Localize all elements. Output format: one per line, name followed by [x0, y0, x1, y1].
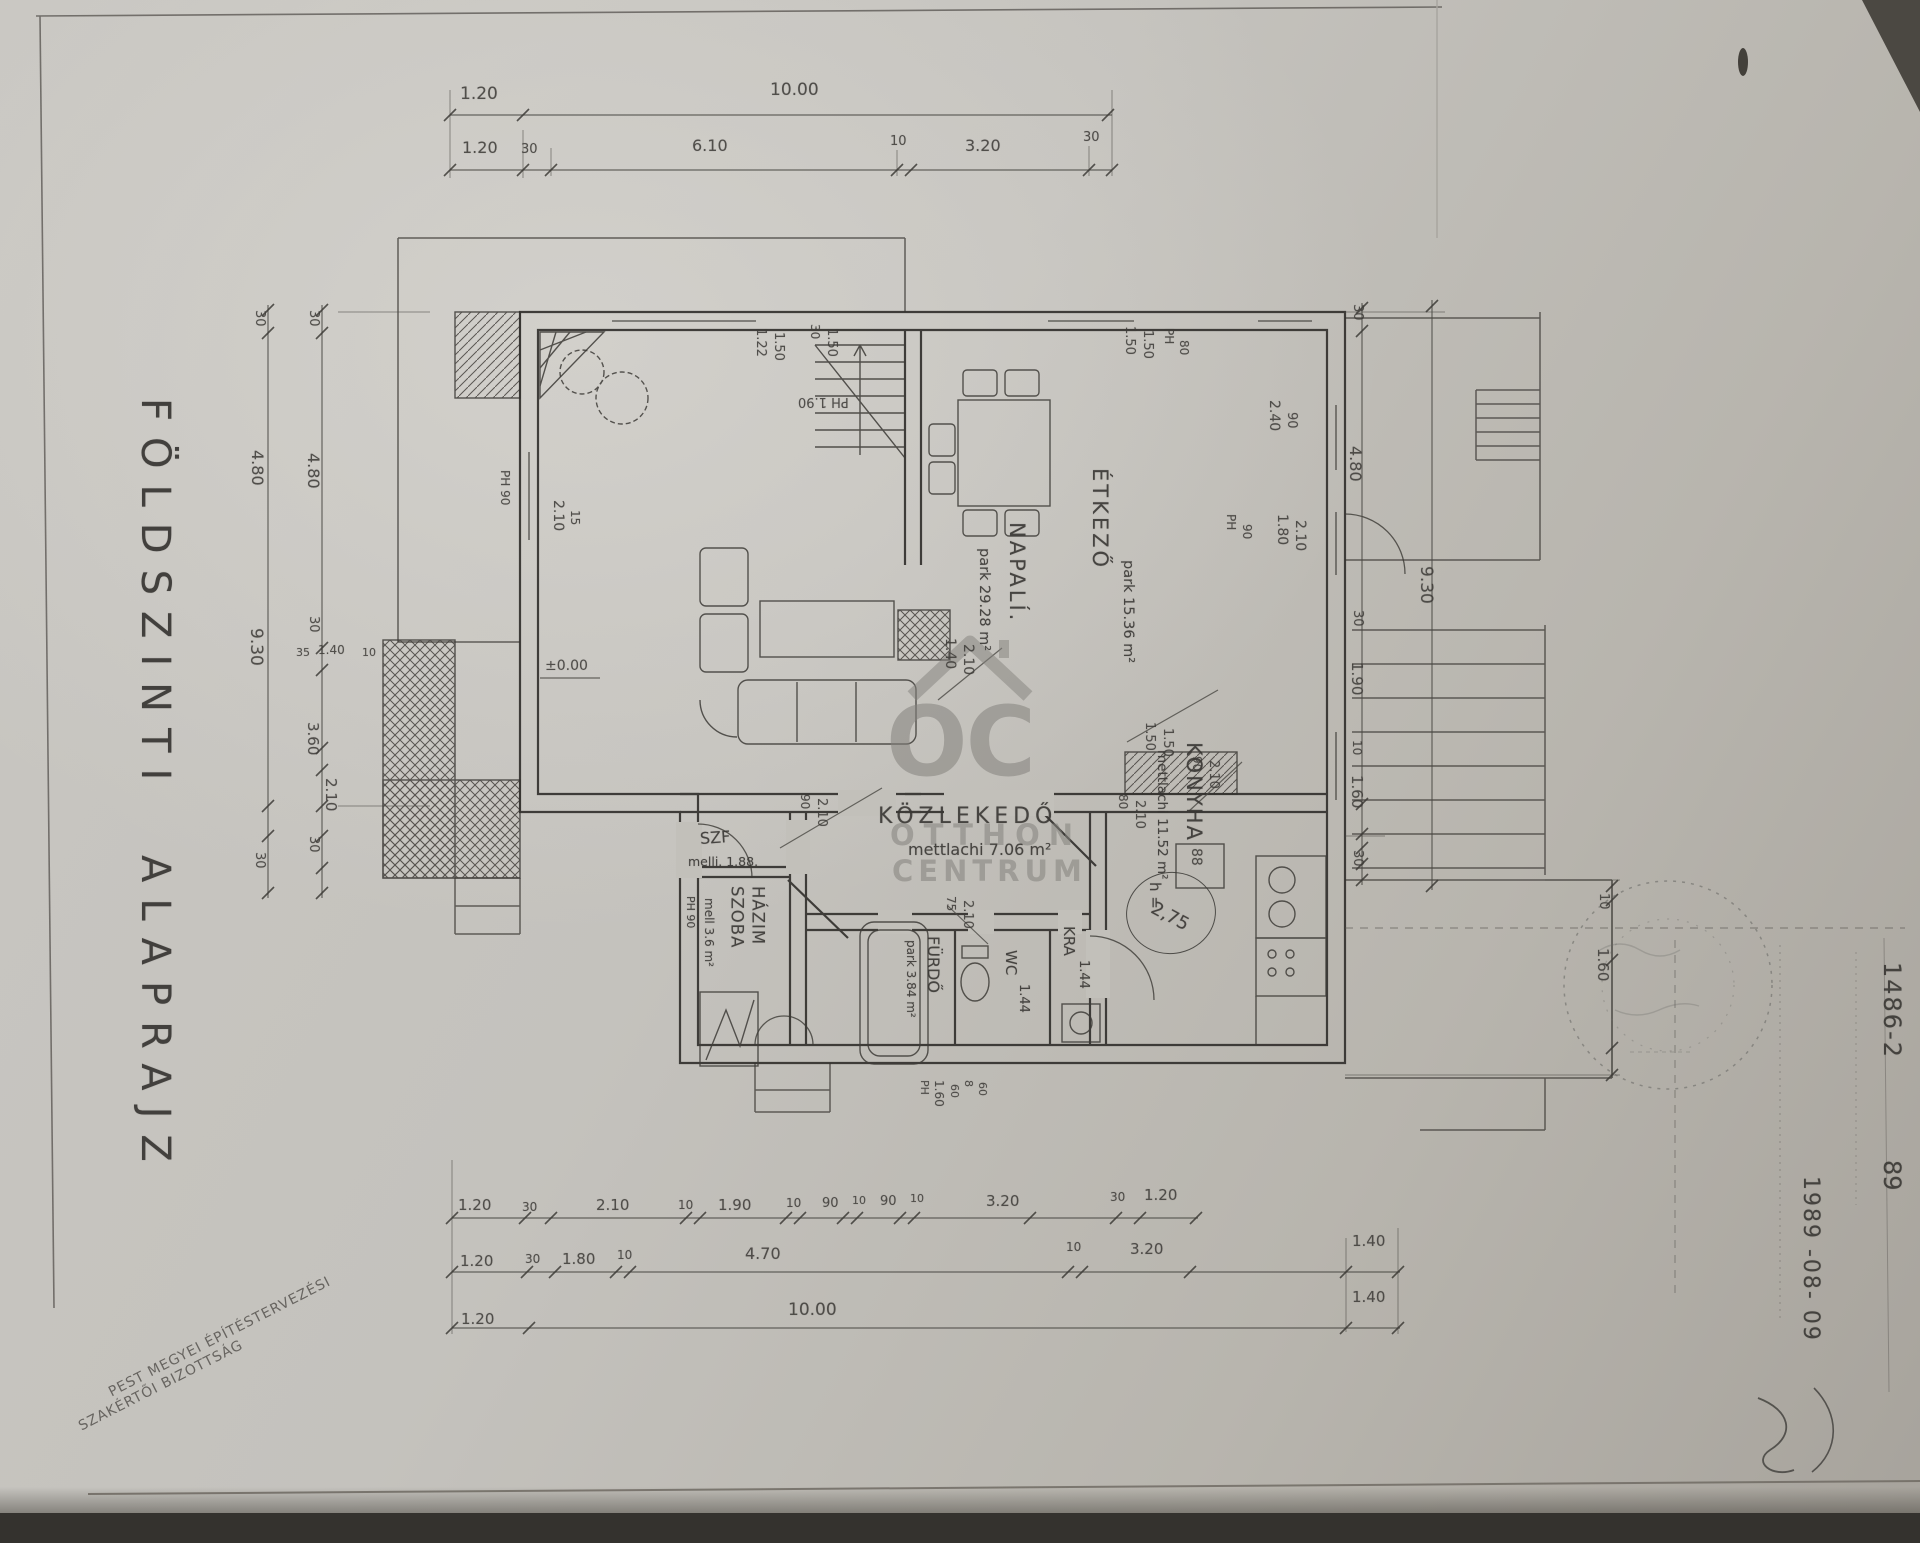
dimension-label: 1.40	[1352, 1232, 1385, 1250]
scan-dark-strip	[0, 1513, 1920, 1543]
dimension-label: 3.20	[965, 136, 1001, 155]
dimension-label: 2.40	[1266, 400, 1282, 431]
dimension-label: 30	[1350, 610, 1365, 627]
dimension-label: 10.00	[770, 80, 819, 100]
plan-title: FÖLDSZINTI ALAPRAJZ	[132, 398, 178, 1178]
dimension-label: 90	[880, 1194, 897, 1209]
room-label-szf: SZF	[699, 827, 731, 848]
room-label-kozlekedo: KÖZLEKEDŐ	[878, 804, 1057, 829]
dimension-label: 10	[890, 134, 907, 149]
room-label-etkezo: ÉTKEZŐ	[1088, 468, 1112, 570]
room-area-hazim-szoba: mell 3.6 m²	[702, 898, 716, 967]
dimension-label: 4.80	[248, 450, 267, 486]
dimension-label: 2.10	[814, 798, 829, 827]
dimension-label: 90	[1240, 524, 1254, 539]
dimension-label: 2.10	[1292, 520, 1308, 551]
dimension-label: 30	[1083, 130, 1100, 145]
paper-bottom-shadow	[0, 1487, 1920, 1513]
room-label-furdo: FÜRDŐ	[924, 936, 943, 993]
dimension-label: 1.20	[461, 1310, 494, 1328]
dimension-label: PH 1.90	[798, 394, 849, 409]
dimension-label: 30	[1350, 304, 1365, 321]
dimension-label: 9.30	[246, 628, 266, 666]
room-extra-hazim-szoba: PH 90	[684, 896, 697, 928]
dimension-label: PH	[1162, 328, 1176, 344]
dimension-label: 10	[910, 1192, 924, 1205]
dimension-label: 1.90	[718, 1196, 751, 1214]
dimension-label: 1.20	[460, 84, 498, 104]
dimension-label: PH 90	[498, 470, 512, 505]
dimension-label: 90	[798, 794, 812, 809]
dimension-label: PH	[1224, 514, 1238, 530]
room-label-wc: WC	[1002, 950, 1020, 975]
dimension-label: 4.80	[1346, 446, 1365, 482]
room-area-etkezo: park 15.36 m²	[1120, 560, 1136, 663]
room-area-furdo: park 3.84 m²	[904, 940, 918, 1018]
doc-number-suffix: 89	[1878, 1160, 1906, 1191]
dimension-label: 30	[1110, 1190, 1125, 1204]
dimension-label: 30	[306, 310, 321, 327]
watermark-logo-text: OC	[886, 686, 1034, 798]
dimension-label: 9.30	[1416, 566, 1436, 604]
dimension-label: 10	[852, 1194, 866, 1207]
dimension-label: 2.10	[960, 900, 975, 929]
dimension-label: 1.60	[1594, 948, 1612, 981]
room-area-kamra: 1.44	[1076, 960, 1091, 989]
dimension-label: 2.10	[960, 644, 976, 675]
dimension-label: 15	[568, 510, 582, 525]
dimension-label: 3.20	[986, 1192, 1019, 1210]
dimension-label: 2.10	[596, 1196, 629, 1214]
dimension-label: 88	[1188, 848, 1204, 866]
dimension-label: 90	[1284, 412, 1299, 429]
dimension-label: 1.50	[771, 332, 786, 361]
dimension-label: 30	[306, 616, 321, 633]
dimension-label: 10	[678, 1198, 693, 1212]
dimension-label: 80	[1177, 340, 1191, 355]
dimension-label: 1.20	[1144, 1186, 1177, 1204]
doc-date: 1989 -08- 09	[1798, 1176, 1823, 1342]
dimension-label: 1.40	[318, 643, 345, 657]
dimension-label: 1.40	[1352, 1288, 1385, 1306]
room-area-szf: melli. 1.88.	[688, 854, 758, 869]
room-area-wc: 1.44	[1016, 984, 1031, 1013]
dimension-label: 6.10	[692, 136, 728, 155]
dimension-label: 1.60	[1348, 775, 1366, 808]
dimension-label: 30	[1350, 850, 1365, 867]
room-label-kamra: KRA	[1060, 926, 1078, 956]
dimension-label: 30	[808, 324, 822, 339]
dimension-label: 1.20	[462, 138, 498, 157]
dimension-label: 90	[822, 1196, 839, 1211]
dimension-label: 10	[1350, 740, 1364, 755]
dimension-label: PH	[918, 1080, 931, 1095]
dimension-label: 2.10	[550, 500, 566, 531]
dimension-label: 2.10	[1206, 760, 1221, 789]
dimension-label: 4.70	[745, 1244, 781, 1263]
dimension-label: 1.40	[942, 638, 958, 669]
room-label-napali: NAPALÍ.	[1005, 522, 1029, 623]
dimension-label: 30	[252, 310, 267, 327]
dimension-label: 30	[521, 142, 538, 157]
dimension-label: 1.50	[1160, 728, 1175, 757]
dimension-label: 30	[525, 1252, 540, 1266]
dimension-label: 90	[1190, 756, 1204, 771]
dimension-label: 1.20	[458, 1196, 491, 1214]
dimension-label: 10	[617, 1248, 632, 1262]
room-area-konyha: mettlachi 11.52 m²	[1154, 750, 1170, 880]
dimension-label: 1.50	[1142, 722, 1157, 751]
dimension-label: 60	[976, 1082, 989, 1096]
dimension-label: 80	[1116, 794, 1130, 809]
dimension-label: 1.20	[460, 1252, 493, 1270]
dimension-label: 1.90	[1348, 662, 1366, 695]
dimension-label: 1.22	[753, 328, 768, 357]
dimension-label: ±0.00	[545, 658, 588, 674]
dimension-label: 10	[786, 1196, 801, 1210]
dimension-label: 75	[944, 896, 958, 911]
dimension-label: 10	[362, 646, 376, 659]
dimension-label: 10	[1596, 893, 1611, 910]
dimension-label: 1.50	[824, 328, 839, 357]
round-seal	[1564, 881, 1772, 1089]
dimension-label: 30	[522, 1200, 537, 1214]
room-label-hazim-szoba: HÁZIM SZOBA	[726, 886, 767, 990]
room-area-napali: park 29.28 m²	[976, 548, 992, 651]
dimension-label: 1.80	[1274, 514, 1290, 545]
scanned-floorplan-page: OC OTTHON CENTRUM FÖLDSZINTI ALAPRAJZ PE…	[0, 0, 1920, 1543]
dimension-label: 3.20	[1130, 1240, 1163, 1258]
dimension-label: 60	[948, 1084, 961, 1098]
dimension-label: 1.80	[562, 1250, 595, 1268]
dimension-label: 2.10	[1132, 800, 1147, 829]
watermark-line2: CENTRUM	[892, 854, 1087, 888]
dimension-label: 1.50	[1140, 330, 1155, 359]
dimension-label: 30	[306, 836, 321, 853]
dimension-label: 35	[296, 646, 310, 659]
watermark-otthon-centrum: OC OTTHON CENTRUM	[880, 628, 1150, 918]
dimension-label: 1.60	[932, 1080, 946, 1107]
dimension-label: 2.10	[322, 778, 340, 811]
dimension-label: 8	[962, 1080, 975, 1087]
dimension-label: 10	[1066, 1240, 1081, 1254]
room-area-kozlekedo: mettlachi 7.06 m²	[908, 840, 1051, 859]
dimension-label: 30	[252, 852, 267, 869]
dimension-label: 3.60	[304, 722, 322, 755]
doc-number: 1486-2	[1878, 962, 1906, 1059]
dimension-label: 1.50	[1122, 326, 1137, 355]
dimension-label: 4.80	[304, 453, 323, 489]
dimension-label: 10.00	[788, 1300, 837, 1320]
